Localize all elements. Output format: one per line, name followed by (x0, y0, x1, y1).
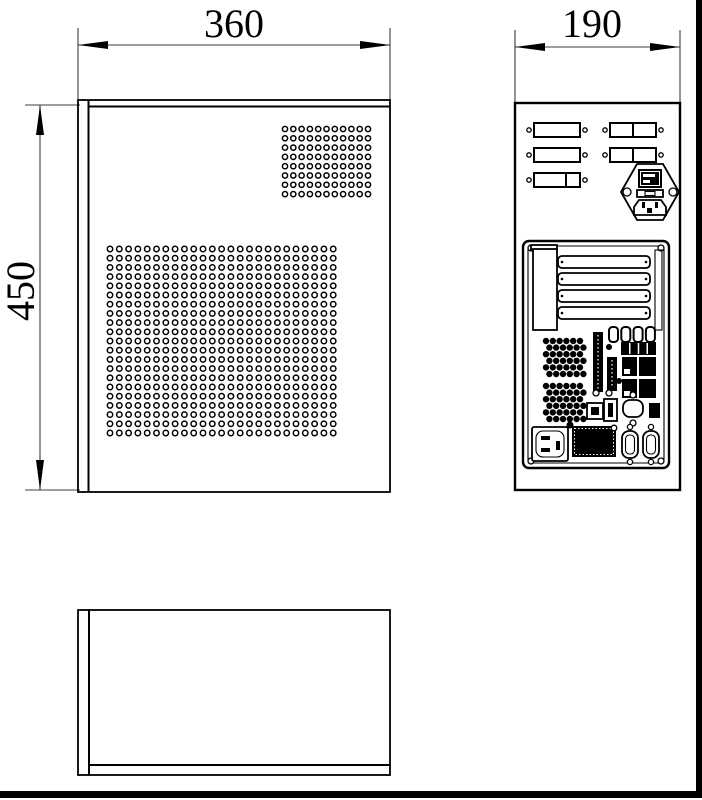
vent-hole (172, 329, 177, 334)
vent-hole (312, 430, 317, 435)
vent-hole (163, 274, 168, 279)
vent-hole (117, 421, 122, 426)
vent-hole (275, 311, 280, 316)
vent-hole (200, 274, 205, 279)
vent-hole (228, 329, 233, 334)
fan-hole (573, 344, 579, 350)
fan-hole (580, 358, 586, 364)
fan-hole (570, 364, 576, 370)
inlet-pin (556, 441, 560, 450)
audio-jack (634, 327, 643, 342)
vent-hole (200, 283, 205, 288)
vent-hole (256, 357, 261, 362)
vent-hole (200, 394, 205, 399)
vent-hole (154, 348, 159, 353)
vent-hole (307, 126, 312, 131)
vent-hole (191, 412, 196, 417)
vent-hole (145, 348, 150, 353)
dimension-rear-width: 190 (515, 1, 680, 103)
vent-hole (312, 384, 317, 389)
vent-hole (135, 384, 140, 389)
fan-hole (567, 358, 573, 364)
vent-hole (163, 246, 168, 251)
vent-hole (191, 384, 196, 389)
vent-hole (293, 274, 298, 279)
fan-hole (577, 338, 583, 344)
fan-hole (563, 396, 569, 402)
vent-hole (247, 375, 252, 380)
vent-hole (154, 366, 159, 371)
vent-hole (331, 265, 336, 270)
vent-hole (293, 320, 298, 325)
screw-hole (527, 128, 531, 132)
socket-pin (642, 202, 645, 208)
expansion-slot (558, 307, 650, 319)
vent-hole (135, 421, 140, 426)
vent-hole (154, 357, 159, 362)
vent-hole (182, 412, 187, 417)
vent-hole (228, 403, 233, 408)
dimension-value-190: 190 (562, 1, 622, 46)
vent-hole (265, 394, 270, 399)
vent-hole (275, 283, 280, 288)
fan-hole (550, 383, 556, 389)
fan-grille-top (543, 338, 587, 377)
arrowhead-right (360, 41, 390, 49)
vent-hole (154, 421, 159, 426)
dimension-value-360: 360 (204, 1, 264, 46)
fan-hole (546, 371, 552, 377)
vent-hole (275, 329, 280, 334)
vent-hole (365, 164, 370, 169)
vent-hole (238, 366, 243, 371)
socket-pin (655, 202, 658, 208)
vent-hole (117, 403, 122, 408)
vent-hole (126, 384, 131, 389)
fan-hole (543, 364, 549, 370)
vent-hole (219, 283, 224, 288)
vent-hole (182, 274, 187, 279)
vent-hole (331, 274, 336, 279)
psu-vent-block (572, 425, 617, 457)
vent-hole (324, 173, 329, 178)
rear-view (515, 103, 680, 490)
fan-hole (567, 416, 573, 422)
vent-hole (126, 338, 131, 343)
vent-hole (331, 338, 336, 343)
ps2-inner (591, 407, 599, 415)
vent-hole (228, 246, 233, 251)
slot-dot (561, 295, 564, 298)
vent-hole (256, 292, 261, 297)
vent-hole (163, 292, 168, 297)
fan-hole (543, 351, 549, 357)
vent-hole (117, 348, 122, 353)
vent-hole (291, 164, 296, 169)
fan-hole (580, 403, 586, 409)
vent-hole (154, 256, 159, 261)
fan-hole (560, 344, 566, 350)
vent-hole (293, 430, 298, 435)
rocker-mark (643, 180, 650, 183)
vent-hole (312, 412, 317, 417)
vent-hole (312, 311, 317, 316)
fan-grille-bottom (543, 383, 587, 422)
vent-hole (293, 329, 298, 334)
vent-hole (324, 136, 329, 141)
vent-hole (282, 164, 287, 169)
vent-hole (107, 256, 112, 261)
vent-hole (265, 403, 270, 408)
vent-hole (275, 338, 280, 343)
vent-hole (238, 320, 243, 325)
vent-hole (247, 320, 252, 325)
vent-hole (247, 292, 252, 297)
vent-hole (228, 366, 233, 371)
vent-hole (126, 375, 131, 380)
vent-hole (307, 136, 312, 141)
vent-hole (163, 412, 168, 417)
vent-hole (284, 302, 289, 307)
vent-hole (284, 265, 289, 270)
vent-hole (256, 311, 261, 316)
vent-hole (126, 329, 131, 334)
vent-hole (126, 320, 131, 325)
dimension-side-width: 360 (78, 1, 390, 100)
vent-hole (219, 430, 224, 435)
vent-hole (182, 283, 187, 288)
vent-hole (154, 430, 159, 435)
vent-hole (312, 283, 317, 288)
vent-hole (117, 338, 122, 343)
vent-hole (117, 329, 122, 334)
vent-hole (332, 164, 337, 169)
vent-hole (291, 192, 296, 197)
vent-hole (163, 357, 168, 362)
vent-hole (154, 412, 159, 417)
vent-hole (247, 265, 252, 270)
vent-hole (312, 357, 317, 362)
vent-hole (275, 256, 280, 261)
vent-hole (200, 256, 205, 261)
vent-hole (210, 292, 215, 297)
vent-hole (219, 384, 224, 389)
vent-hole (135, 256, 140, 261)
vent-hole (303, 394, 308, 399)
vent-hole (228, 384, 233, 389)
vent-hole (357, 182, 362, 187)
vent-hole (316, 126, 321, 131)
sheet-border-right (696, 0, 702, 798)
vent-hole (126, 311, 131, 316)
vent-hole (291, 126, 296, 131)
vent-hole (135, 348, 140, 353)
vent-hole (312, 394, 317, 399)
vent-hole (321, 384, 326, 389)
vent-hole (265, 384, 270, 389)
vent-hole (135, 283, 140, 288)
vent-hole (182, 384, 187, 389)
fan-hole (546, 344, 552, 350)
vent-hole (154, 394, 159, 399)
vent-hole (299, 145, 304, 150)
vent-hole (200, 403, 205, 408)
screw-hole (627, 424, 632, 429)
vent-hole (172, 357, 177, 362)
vent-hole (265, 357, 270, 362)
lan-port-detail (624, 391, 630, 396)
vent-hole (200, 265, 205, 270)
vent-hole (172, 311, 177, 316)
vent-hole (182, 375, 187, 380)
vent-hole (331, 329, 336, 334)
vent-hole (293, 338, 298, 343)
vent-hole (365, 182, 370, 187)
vent-hole (238, 348, 243, 353)
vent-hole (341, 126, 346, 131)
vent-hole (341, 145, 346, 150)
vent-hole (172, 320, 177, 325)
slot-dot (645, 278, 648, 281)
vent-hole (247, 302, 252, 307)
vent-hole (154, 246, 159, 251)
vent-hole (107, 274, 112, 279)
segmented-vent-grille (621, 342, 656, 355)
slot-dot (645, 261, 648, 264)
vent-hole (200, 320, 205, 325)
vent-hole (126, 274, 131, 279)
vent-hole (117, 412, 122, 417)
vent-hole (145, 311, 150, 316)
vent-hole (265, 366, 270, 371)
screw-hole (603, 153, 607, 157)
io-cutout (534, 148, 580, 162)
fan-hole (550, 351, 556, 357)
vent-hole (126, 394, 131, 399)
vent-hole (107, 246, 112, 251)
vent-hole (117, 274, 122, 279)
screw-hole (593, 390, 599, 396)
screw-hole (623, 188, 631, 196)
vent-hole (293, 375, 298, 380)
vent-hole (312, 366, 317, 371)
vent-hole (238, 421, 243, 426)
vent-hole (256, 384, 261, 389)
vent-hole (316, 154, 321, 159)
vent-hole (145, 320, 150, 325)
vent-hole (265, 375, 270, 380)
vent-hole (219, 274, 224, 279)
vent-hole (107, 430, 112, 435)
vent-hole (126, 412, 131, 417)
vent-hole (126, 246, 131, 251)
vent-hole (321, 246, 326, 251)
vent-hole (331, 421, 336, 426)
vent-hole (107, 338, 112, 343)
vent-hole (135, 430, 140, 435)
vent-hole (126, 302, 131, 307)
ps2-port (587, 403, 603, 419)
vent-hole (299, 182, 304, 187)
vent-hole (312, 246, 317, 251)
vent-hole (145, 394, 150, 399)
vent-hole (275, 394, 280, 399)
vent-hole (303, 311, 308, 316)
vent-hole (154, 403, 159, 408)
vent-hole (154, 329, 159, 334)
vent-hole (275, 246, 280, 251)
psu-vent-fill (572, 426, 616, 457)
vent-hole (331, 430, 336, 435)
arrowhead-bottom (36, 460, 44, 490)
vent-hole (238, 375, 243, 380)
vent-hole (303, 366, 308, 371)
fan-hole (573, 403, 579, 409)
vent-hole (316, 173, 321, 178)
vent-hole (282, 126, 287, 131)
vent-hole (191, 246, 196, 251)
vent-hole (182, 421, 187, 426)
vent-hole (357, 126, 362, 131)
vent-hole (135, 394, 140, 399)
vent-hole (256, 394, 261, 399)
vent-hole (357, 173, 362, 178)
vent-hole (293, 421, 298, 426)
vent-hole (191, 375, 196, 380)
vent-hole (303, 320, 308, 325)
vent-hole (126, 430, 131, 435)
screw-hole (659, 153, 663, 157)
usb-port-pair (639, 357, 656, 376)
vent-hole (200, 366, 205, 371)
fan-hole (560, 416, 566, 422)
vent-hole (265, 311, 270, 316)
vent-hole (265, 302, 270, 307)
socket-pin (647, 208, 652, 213)
vent-hole (135, 302, 140, 307)
fan-hole (546, 358, 552, 364)
vent-hole (275, 320, 280, 325)
vent-hole (219, 329, 224, 334)
vent-hole (303, 348, 308, 353)
vent-hole (200, 246, 205, 251)
vent-hole (200, 412, 205, 417)
vent-hole (247, 329, 252, 334)
vent-hole (332, 145, 337, 150)
vent-hole (291, 145, 296, 150)
vent-hole (145, 403, 150, 408)
rocker-mark (643, 174, 655, 177)
vent-hole (303, 375, 308, 380)
vent-hole (303, 338, 308, 343)
vent-hole (284, 311, 289, 316)
vent-hole (219, 403, 224, 408)
fan-hole (553, 416, 559, 422)
vent-hole (284, 430, 289, 435)
vent-hole (303, 256, 308, 261)
slot-dot (561, 261, 564, 264)
vent-hole (107, 394, 112, 399)
fan-hole (556, 351, 562, 357)
vent-hole (256, 302, 261, 307)
vent-hole (145, 265, 150, 270)
vent-hole (163, 320, 168, 325)
vent-hole (145, 302, 150, 307)
fan-hole (546, 416, 552, 422)
fan-hole (577, 351, 583, 357)
vent-hole (238, 384, 243, 389)
fan-hole (546, 403, 552, 409)
vent-hole (210, 384, 215, 389)
expansion-slot (558, 290, 650, 302)
vent-hole (303, 403, 308, 408)
vent-hole (256, 265, 261, 270)
vent-hole (135, 246, 140, 251)
fan-hole (543, 396, 549, 402)
vent-hole (210, 320, 215, 325)
fan-hole (570, 409, 576, 415)
vent-hole (107, 412, 112, 417)
fan-hole (567, 344, 573, 350)
vent-hole (341, 192, 346, 197)
vent-hole (172, 274, 177, 279)
vent-hole (275, 274, 280, 279)
fan-hole (580, 344, 586, 350)
vent-hole (282, 192, 287, 197)
vent-hole (291, 182, 296, 187)
screw-hole (603, 128, 607, 132)
vent-hole (265, 320, 270, 325)
vent-hole (265, 329, 270, 334)
vent-hole (247, 311, 252, 316)
vent-hole (117, 311, 122, 316)
vent-hole (210, 357, 215, 362)
vent-hole (126, 403, 131, 408)
fan-hole (577, 383, 583, 389)
vent-hole (117, 430, 122, 435)
vent-hole (265, 283, 270, 288)
screw-hole (669, 188, 677, 196)
vent-hole (312, 274, 317, 279)
vent-hole (307, 182, 312, 187)
vent-hole (228, 348, 233, 353)
vent-hole (247, 430, 252, 435)
vent-hole (107, 283, 112, 288)
vent-hole (200, 348, 205, 353)
fan-hole (573, 389, 579, 395)
vent-hole (331, 311, 336, 316)
vent-hole (191, 366, 196, 371)
fan-hole (553, 371, 559, 377)
fan-hole (560, 358, 566, 364)
fan-hole (556, 338, 562, 344)
vent-hole (321, 320, 326, 325)
vent-hole (107, 366, 112, 371)
vent-hole (117, 320, 122, 325)
vent-hole (200, 292, 205, 297)
vent-hole (349, 182, 354, 187)
fan-hole (556, 364, 562, 370)
vent-hole (238, 357, 243, 362)
vent-hole (145, 246, 150, 251)
vent-hole (284, 246, 289, 251)
vent-hole (349, 126, 354, 131)
vent-hole (247, 366, 252, 371)
vent-hole (172, 421, 177, 426)
vent-hole (238, 338, 243, 343)
vent-hole (117, 265, 122, 270)
vent-hole (219, 394, 224, 399)
